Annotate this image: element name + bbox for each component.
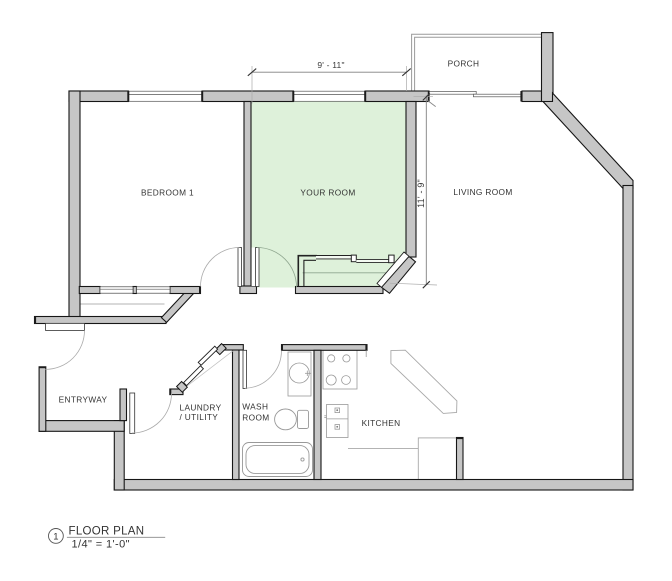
svg-text:PORCH: PORCH	[448, 59, 480, 69]
svg-text:FLOOR PLAN: FLOOR PLAN	[69, 526, 145, 538]
svg-text:1/4" = 1'-0": 1/4" = 1'-0"	[72, 538, 130, 550]
svg-text:WASH: WASH	[242, 401, 268, 411]
svg-text:1: 1	[53, 531, 58, 542]
svg-text:LAUNDRY: LAUNDRY	[180, 402, 222, 412]
svg-text:ENTRYWAY: ENTRYWAY	[59, 395, 108, 405]
svg-text:YOUR ROOM: YOUR ROOM	[300, 188, 355, 198]
svg-text:KITCHEN: KITCHEN	[362, 418, 401, 428]
svg-text:LIVING ROOM: LIVING ROOM	[453, 187, 512, 197]
svg-text:BEDROOM 1: BEDROOM 1	[141, 187, 194, 197]
svg-text:ROOM: ROOM	[242, 412, 269, 422]
svg-text:11' - 9": 11' - 9"	[416, 179, 426, 208]
svg-text:9' - 11": 9' - 11"	[317, 60, 344, 70]
svg-text:/ UTILITY: / UTILITY	[180, 412, 219, 422]
